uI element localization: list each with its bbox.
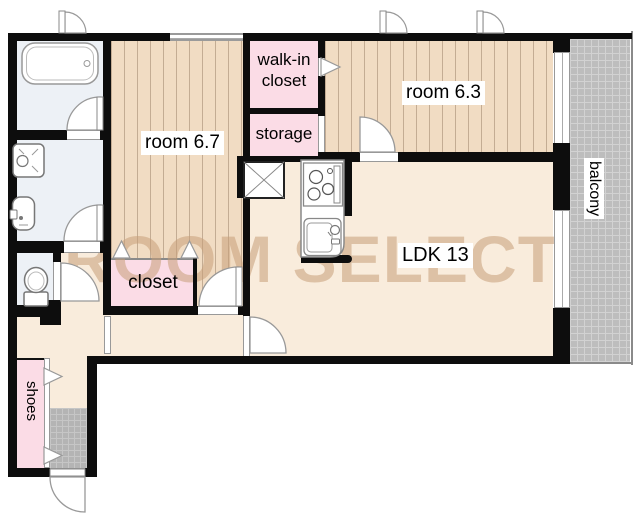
door-arc bbox=[61, 263, 99, 301]
folding-door-icon bbox=[321, 58, 340, 76]
door-arc bbox=[380, 11, 407, 33]
washbasin-icon bbox=[10, 197, 35, 230]
bathtub-icon bbox=[22, 43, 98, 84]
toilet-icon bbox=[24, 268, 48, 307]
folding-door-icon bbox=[44, 447, 62, 464]
door-arc bbox=[59, 11, 86, 33]
folding-door-icon bbox=[181, 241, 198, 258]
shoes-label: shoes bbox=[23, 381, 40, 421]
ldk-label: LDK 13 bbox=[398, 243, 473, 268]
room-63-label: room 6.3 bbox=[402, 81, 485, 105]
door-arc bbox=[64, 205, 103, 241]
door-arc bbox=[477, 11, 504, 33]
door-arc bbox=[199, 267, 242, 306]
door-arc bbox=[67, 97, 103, 130]
folding-door-icon bbox=[113, 241, 130, 258]
room-67-label: room 6.7 bbox=[141, 131, 224, 155]
balcony-label: balcony bbox=[584, 158, 604, 219]
floorplan: ROOM SELECT bbox=[0, 0, 640, 532]
folding-door-icon bbox=[44, 368, 62, 385]
entrance-door-arc bbox=[50, 469, 85, 512]
door-arc bbox=[250, 317, 286, 353]
door-arc bbox=[360, 117, 395, 152]
kitchen-counter-icon bbox=[301, 160, 344, 257]
washing-machine-icon bbox=[13, 144, 44, 177]
refrigerator-space-icon bbox=[244, 162, 284, 198]
closet-label: closet bbox=[121, 272, 185, 294]
walkin-closet-label: walk-in closet bbox=[250, 49, 318, 92]
storage-label: storage bbox=[250, 124, 318, 144]
